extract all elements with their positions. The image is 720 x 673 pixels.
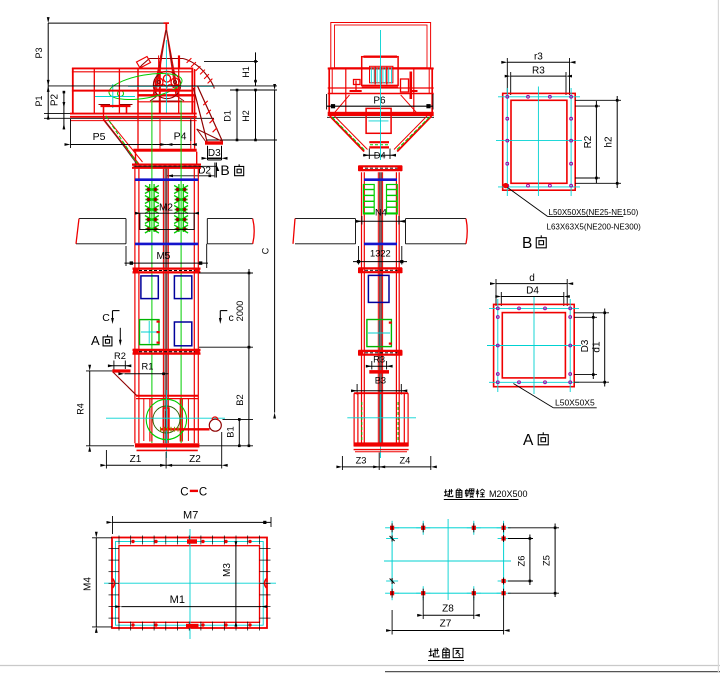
svg-text:L50X50X5(NE25-NE150): L50X50X5(NE25-NE150) [549,208,639,217]
svg-text:P2: P2 [50,93,61,106]
svg-text:B: B [522,235,532,252]
svg-text:P6: P6 [373,96,386,107]
svg-text:R2: R2 [583,135,594,148]
svg-text:M5: M5 [156,251,170,262]
svg-text:M3: M3 [222,563,233,577]
svg-text:Z7: Z7 [440,619,452,630]
svg-text:P4: P4 [174,131,187,143]
svg-text:A: A [91,333,100,348]
svg-text:d1: d1 [591,341,602,353]
svg-text:A: A [523,432,534,449]
svg-text:D4: D4 [374,150,386,160]
svg-text:R3: R3 [373,355,385,365]
svg-text:L63X63X5(NE200-NE300): L63X63X5(NE200-NE300) [547,223,642,232]
svg-text:d: d [529,273,535,284]
svg-text:B1: B1 [225,426,235,437]
svg-text:r3: r3 [534,52,543,63]
svg-text:D3: D3 [580,339,591,352]
svg-text:C: C [180,487,188,499]
svg-text:Z8: Z8 [442,604,454,615]
svg-text:Z2: Z2 [189,454,201,465]
svg-text:R1: R1 [142,362,154,372]
svg-text:M20X500: M20X500 [489,489,528,499]
svg-text:Z5: Z5 [542,555,552,566]
svg-text:R2: R2 [114,351,126,361]
svg-text:B2: B2 [235,394,245,405]
svg-text:R3: R3 [532,65,545,76]
svg-text:D3: D3 [208,148,221,159]
svg-text:C: C [199,487,207,499]
svg-text:c: c [229,312,234,324]
svg-text:B3: B3 [375,375,386,385]
svg-text:Z6: Z6 [516,556,526,567]
svg-text:M1: M1 [170,594,185,606]
svg-text:L50X50X5: L50X50X5 [555,398,595,408]
svg-text:D1: D1 [223,110,233,122]
svg-text:h2: h2 [604,136,615,148]
svg-text:M4: M4 [82,577,93,591]
svg-text:H2: H2 [241,110,251,122]
svg-text:P1: P1 [34,95,44,106]
svg-text:Z3: Z3 [356,456,367,466]
svg-text:C: C [260,247,270,254]
svg-text:Z4: Z4 [399,456,410,466]
svg-text:R4: R4 [76,403,86,415]
svg-text:1322: 1322 [370,249,391,259]
svg-text:H1: H1 [241,66,251,78]
svg-text:Z1: Z1 [130,454,142,465]
svg-text:2000: 2000 [235,301,245,322]
svg-text:P3: P3 [34,47,44,58]
svg-text:M7: M7 [183,510,198,522]
svg-text:P5: P5 [93,131,106,143]
svg-text:D4: D4 [526,286,539,297]
svg-text:N4: N4 [375,208,387,218]
svg-text:B: B [220,162,229,178]
svg-text:C: C [102,312,110,324]
svg-text:M2: M2 [159,203,173,214]
